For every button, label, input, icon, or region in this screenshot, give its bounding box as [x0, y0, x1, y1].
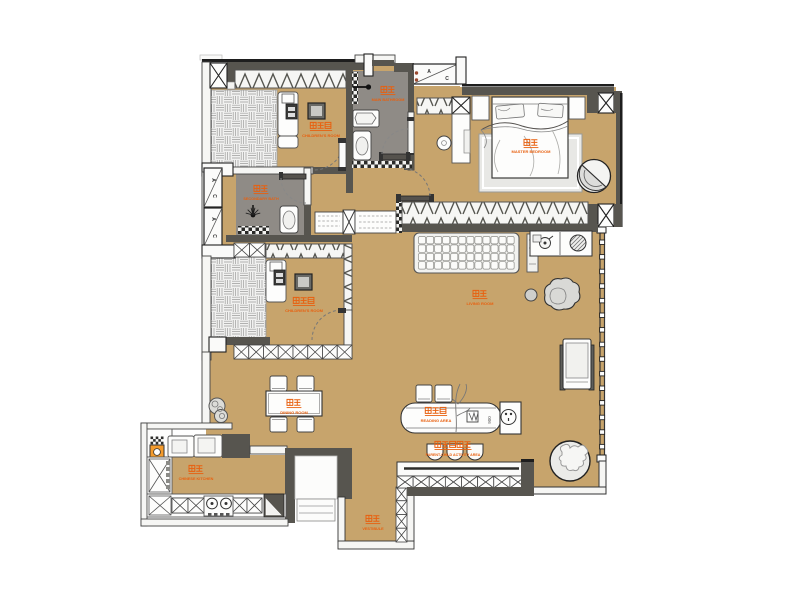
svg-text:A: A — [210, 178, 216, 182]
svg-text:CHILDREN'S ROOM: CHILDREN'S ROOM — [285, 308, 324, 313]
svg-text:C: C — [211, 194, 217, 198]
svg-text:READING AREA: READING AREA — [421, 418, 452, 423]
svg-text:MAIN BATHROOM: MAIN BATHROOM — [372, 98, 405, 102]
svg-text:DINING ROOM: DINING ROOM — [280, 410, 308, 415]
svg-text:SECONDARY BATH: SECONDARY BATH — [243, 197, 279, 201]
svg-text:CHINESE KITCHEN: CHINESE KITCHEN — [179, 477, 214, 481]
svg-text:900: 900 — [487, 416, 492, 424]
svg-text:CHILDREN'S ROOM: CHILDREN'S ROOM — [302, 133, 341, 138]
svg-text:C: C — [445, 76, 449, 82]
svg-text:A: A — [427, 69, 431, 75]
svg-text:VESTIBULE: VESTIBULE — [362, 527, 384, 531]
svg-text:C: C — [211, 234, 217, 238]
svg-text:MASTER BEDROOM: MASTER BEDROOM — [512, 149, 552, 154]
svg-text:A: A — [210, 217, 216, 221]
svg-text:PARENT-CHILD ACTIVITY AREA: PARENT-CHILD ACTIVITY AREA — [426, 453, 481, 457]
svg-text:LIVING ROOM: LIVING ROOM — [467, 301, 495, 306]
